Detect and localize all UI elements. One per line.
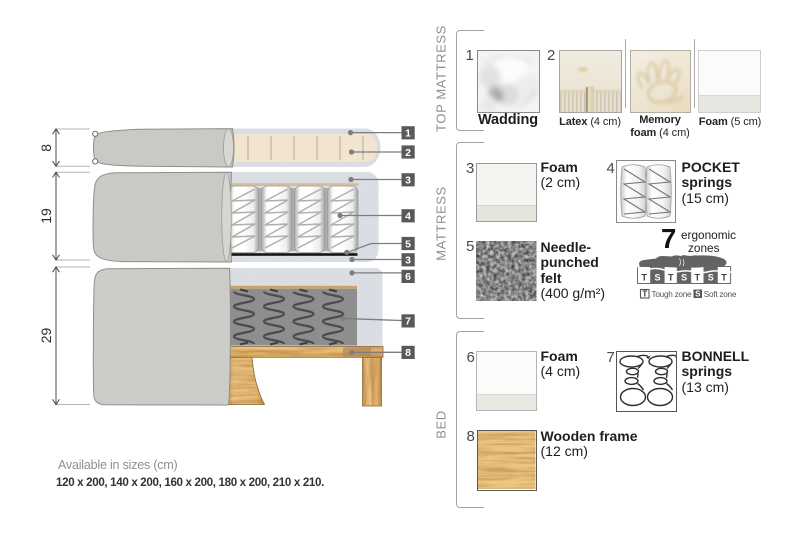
svg-text:19: 19 xyxy=(38,208,54,224)
svg-text:1: 1 xyxy=(405,128,411,140)
svg-text:4: 4 xyxy=(405,211,411,223)
svg-text:29: 29 xyxy=(38,328,54,344)
svg-text:T: T xyxy=(641,273,647,283)
svg-text:S: S xyxy=(654,273,660,283)
svg-text:Soft zone: Soft zone xyxy=(704,290,736,299)
svg-text:S: S xyxy=(695,290,701,299)
svg-text:3: 3 xyxy=(405,175,411,187)
svg-text:S: S xyxy=(681,273,687,283)
svg-text:2: 2 xyxy=(405,147,411,159)
svg-text:3: 3 xyxy=(405,255,411,267)
svg-text:T: T xyxy=(642,290,647,299)
svg-text:8: 8 xyxy=(405,347,411,359)
svg-text:Tough zone: Tough zone xyxy=(652,290,693,299)
svg-text:8: 8 xyxy=(38,144,54,152)
svg-text:S: S xyxy=(708,273,714,283)
svg-text:T: T xyxy=(721,273,727,283)
svg-text:T: T xyxy=(668,273,674,283)
svg-text:6: 6 xyxy=(405,271,411,283)
svg-text:7: 7 xyxy=(405,316,411,328)
svg-text:5: 5 xyxy=(405,238,411,250)
svg-text:T: T xyxy=(695,273,701,283)
